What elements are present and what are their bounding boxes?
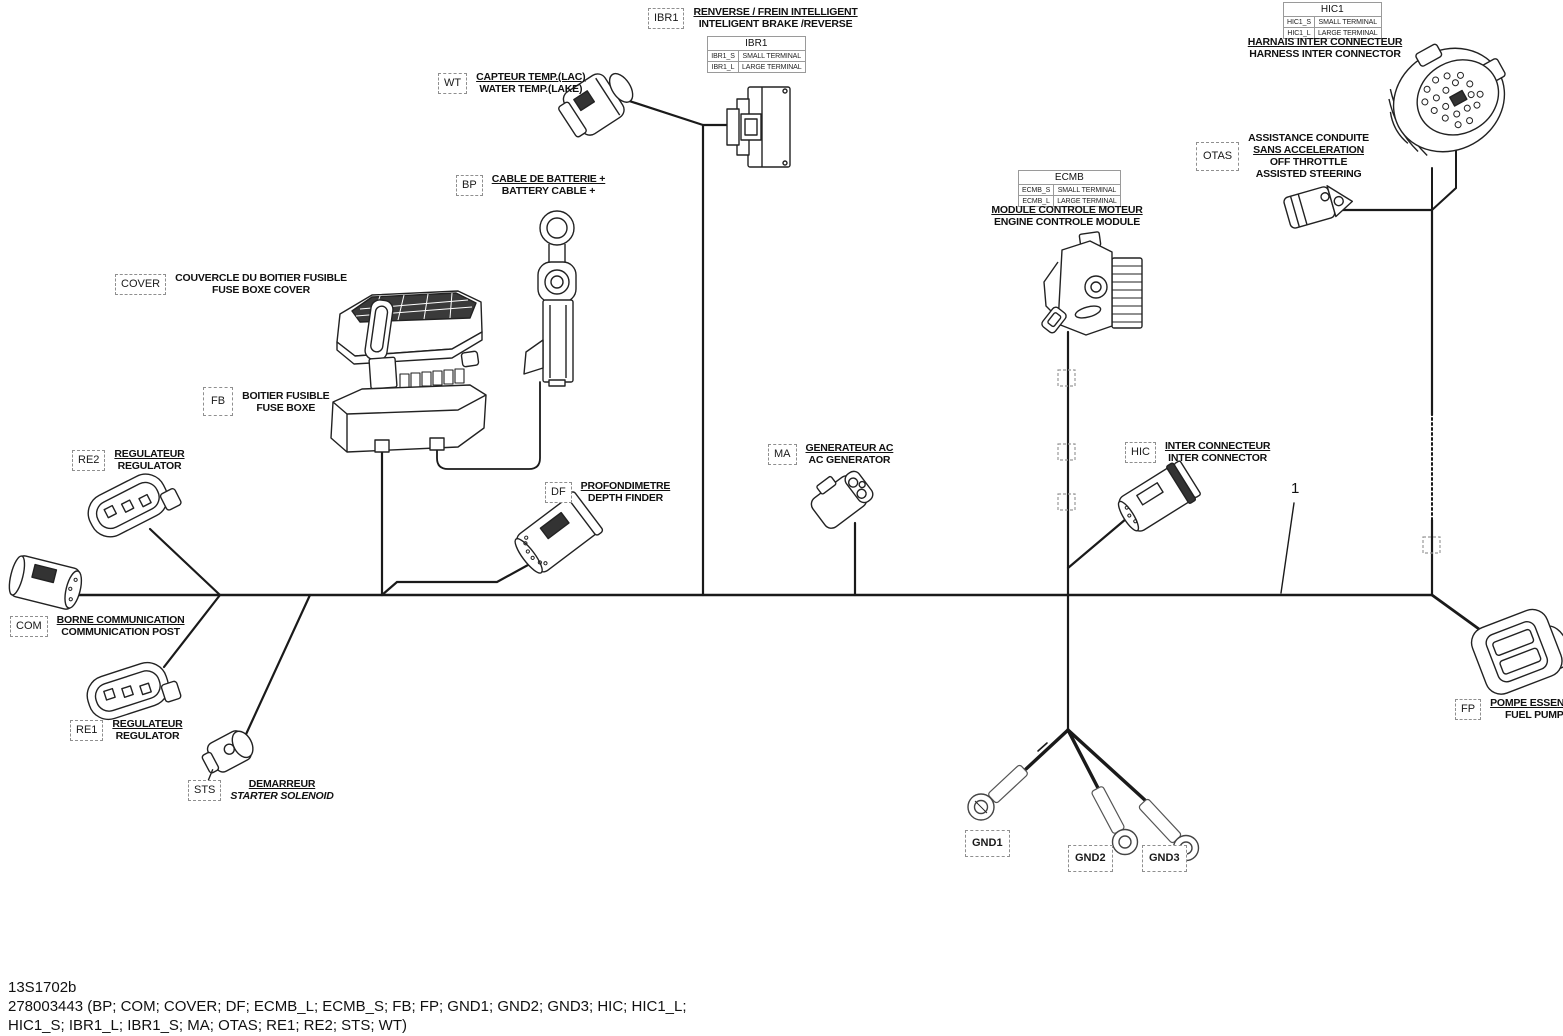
bp-name-fr: CABLE DE BATTERIE + — [492, 173, 606, 185]
bp-name-en: BATTERY CABLE + — [502, 185, 595, 197]
label-ibr1: IBR1 RENVERSE / FREIN INTELLIGENT INTELI… — [648, 6, 858, 30]
sts-code-box: STS — [188, 780, 221, 801]
bp-cable-drawing — [524, 211, 576, 386]
hic1-table-cell: HIC1_S — [1284, 17, 1315, 28]
otas-name-en1: OFF THROTTLE — [1270, 156, 1348, 168]
fp-name-fr: POMPE ESSENCE — [1490, 697, 1563, 709]
label-com: COM BORNE COMMUNICATION COMMUNICATION PO… — [10, 614, 185, 638]
df-code-box: DF — [545, 482, 572, 503]
label-fb: FB BOITIER FUSIBLE FUSE BOXE — [203, 387, 329, 416]
ibr1-name-fr: RENVERSE / FREIN INTELLIGENT — [693, 6, 857, 18]
re2-connector-drawing — [81, 464, 182, 545]
otas-name-fr1: ASSISTANCE CONDUITE — [1248, 132, 1369, 144]
sts-name-en: STARTER SOLENOID — [230, 790, 333, 802]
fb-name-fr: BOITIER FUSIBLE — [242, 390, 329, 402]
re2-name-fr: REGULATEUR — [114, 448, 184, 460]
wt-branch-wire — [614, 96, 703, 595]
fuse-box-cover-drawing — [337, 291, 482, 367]
ibr1-table-cell: IBR1_S — [708, 51, 739, 62]
ibr1-table-cell: LARGE TERMINAL — [739, 62, 806, 73]
hic1-table-cell: SMALL TERMINAL — [1315, 17, 1382, 28]
com-code-box: COM — [10, 616, 48, 637]
hic-code-box: HIC — [1125, 442, 1156, 463]
hic-connector-drawing — [1113, 459, 1202, 538]
wt-name-fr: CAPTEUR TEMP.(LAC) — [476, 71, 585, 83]
ecmb-terminal-table: ECMB ECMB_S SMALL TERMINAL ECMB_L LARGE … — [1018, 170, 1121, 207]
label-fp: FP POMPE ESSENCE FUEL PUMP — [1455, 697, 1563, 721]
gnd1-code-box: GND1 — [965, 830, 1010, 857]
wiring-diagram-page: IBR1 RENVERSE / FREIN INTELLIGENT INTELI… — [0, 0, 1563, 1036]
otas-name-fr2: SANS ACCELERATION — [1253, 144, 1364, 156]
gnd2-code-box: GND2 — [1068, 845, 1113, 872]
ibr1-table-cell: IBR1_L — [708, 62, 739, 73]
df-name-en: DEPTH FINDER — [588, 492, 663, 504]
part-list-line2: HIC1_S; IBR1_L; IBR1_S; MA; OTAS; RE1; R… — [8, 1016, 687, 1035]
cover-code-box: COVER — [115, 274, 166, 295]
part-list-line1: 278003443 (BP; COM; COVER; DF; ECMB_L; E… — [8, 997, 687, 1016]
otas-connector-drawing — [1283, 180, 1355, 229]
ibr1-table-title: IBR1 — [708, 37, 806, 51]
re2-code-box: RE2 — [72, 450, 105, 471]
ecmb-name-fr: MODULE CONTROLE MOTEUR — [991, 204, 1142, 216]
wt-name-en: WATER TEMP.(LAKE) — [479, 83, 582, 95]
otas-name-en2: ASSISTED STEERING — [1256, 168, 1362, 180]
ibr1-terminal-table: IBR1 IBR1_S SMALL TERMINAL IBR1_L LARGE … — [707, 36, 806, 73]
hic-name-fr: INTER CONNECTEUR — [1165, 440, 1270, 452]
drawing-code: 13S1702b — [8, 978, 687, 997]
ecmb-name-en: ENGINE CONTROLE MODULE — [994, 216, 1140, 228]
ma-name-en: AC GENERATOR — [809, 454, 891, 466]
fp-connector-drawing — [1467, 601, 1563, 699]
com-connector-drawing — [6, 554, 85, 612]
gnd1-wire — [1026, 730, 1068, 769]
clip-icon — [1058, 444, 1075, 460]
ecmb-table-cell: ECMB_S — [1019, 185, 1054, 196]
cover-name-fr: COUVERCLE DU BOITIER FUSIBLE — [175, 272, 347, 284]
drawing-meta: 13S1702b 278003443 (BP; COM; COVER; DF; … — [8, 978, 687, 1035]
re1-code-box: RE1 — [70, 720, 103, 741]
re2-name-en: REGULATOR — [118, 460, 182, 472]
wt-code-box: WT — [438, 73, 467, 94]
bp-code-box: BP — [456, 175, 483, 196]
df-connector-drawing — [509, 491, 604, 580]
re2-branch-wire — [150, 529, 220, 595]
label-wt: WT CAPTEUR TEMP.(LAC) WATER TEMP.(LAKE) — [438, 71, 585, 95]
hic-branch-wire — [1068, 513, 1133, 568]
ecmb-connector-drawing — [1040, 232, 1142, 335]
label-bp: BP CABLE DE BATTERIE + BATTERY CABLE + — [456, 173, 605, 197]
hic-name-en: INTER CONNECTOR — [1168, 452, 1267, 464]
label-hic1: HARNAIS INTER CONNECTEUR HARNESS INTER C… — [1258, 36, 1392, 60]
sts-branch-wire — [242, 595, 310, 743]
re1-connector-drawing — [82, 655, 182, 726]
ecmb-table-cell: SMALL TERMINAL — [1054, 185, 1121, 196]
fb-code-box: FB — [203, 387, 233, 416]
gnd3-wire — [1068, 730, 1146, 801]
clip-icon — [1058, 494, 1075, 510]
fp-code-box: FP — [1455, 699, 1481, 720]
ma-connector-drawing — [803, 461, 876, 531]
com-name-en: COMMUNICATION POST — [61, 626, 180, 638]
clip-icon — [1058, 370, 1075, 386]
label-df: DF PROFONDIMETRE DEPTH FINDER — [545, 480, 670, 504]
label-re1: RE1 REGULATEUR REGULATOR — [70, 718, 183, 742]
label-otas: OTAS ASSISTANCE CONDUITE SANS ACCELERATI… — [1196, 132, 1369, 180]
re1-name-en: REGULATOR — [116, 730, 180, 742]
hic1-leader-a — [1432, 150, 1456, 210]
callout-leader-line — [1281, 503, 1294, 593]
label-ecmb: MODULE CONTROLE MOTEUR ENGINE CONTROLE M… — [1002, 204, 1132, 228]
hic1-terminal-table: HIC1 HIC1_S SMALL TERMINAL HIC1_L LARGE … — [1283, 2, 1382, 39]
gnd2-wire — [1068, 730, 1098, 788]
label-hic: HIC INTER CONNECTEUR INTER CONNECTOR — [1125, 440, 1270, 464]
label-re2: RE2 REGULATEUR REGULATOR — [72, 448, 185, 472]
ibr1-table-cell: SMALL TERMINAL — [739, 51, 806, 62]
fuse-box-drawing — [331, 357, 486, 452]
sts-name-fr: DEMARREUR — [249, 778, 315, 790]
ecmb-table-title: ECMB — [1019, 171, 1121, 185]
hic1-name-fr: HARNAIS INTER CONNECTEUR — [1248, 36, 1402, 48]
ibr1-name-en: INTELIGENT BRAKE /REVERSE — [699, 18, 853, 30]
label-sts: STS DEMARREUR STARTER SOLENOID — [188, 778, 334, 802]
fb-name-en: FUSE BOXE — [256, 402, 315, 414]
gnd3-code-box: GND3 — [1142, 845, 1187, 872]
harness-callout-1: 1 — [1291, 480, 1299, 497]
df-name-fr: PROFONDIMETRE — [581, 480, 671, 492]
hic1-name-en: HARNESS INTER CONNECTOR — [1249, 48, 1401, 60]
ma-name-fr: GENERATEUR AC — [806, 442, 894, 454]
label-ma: MA GENERATEUR AC AC GENERATOR — [768, 442, 893, 466]
label-cover: COVER COUVERCLE DU BOITIER FUSIBLE FUSE … — [115, 272, 347, 296]
ibr-connector-drawing — [727, 87, 790, 167]
fp-name-en: FUEL PUMP — [1505, 709, 1563, 721]
gnd1-terminal-drawing — [968, 764, 1029, 820]
com-name-fr: BORNE COMMUNICATION — [57, 614, 185, 626]
hic1-table-title: HIC1 — [1284, 3, 1382, 17]
otas-code-box: OTAS — [1196, 142, 1239, 171]
ma-code-box: MA — [768, 444, 797, 465]
ibr1-code-box: IBR1 — [648, 8, 684, 29]
re1-name-fr: REGULATEUR — [112, 718, 182, 730]
cover-name-en: FUSE BOXE COVER — [212, 284, 310, 296]
